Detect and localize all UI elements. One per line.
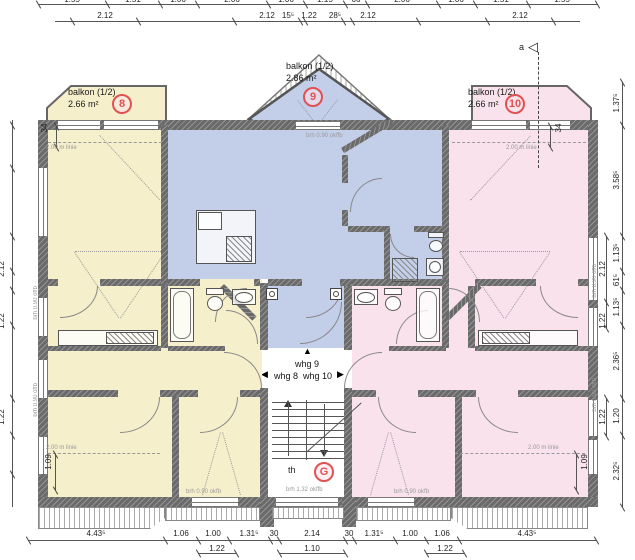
window (472, 120, 526, 130)
wall-segment (48, 279, 58, 286)
wall-segment (348, 226, 384, 232)
dimension-label: 1.20 (612, 408, 621, 424)
dimension-label: 1.22 (437, 544, 453, 553)
height-line-dashed (455, 453, 585, 454)
dimension-line (272, 437, 344, 438)
dimension-label: 1.15 (317, 0, 333, 4)
dimension-label: 2.12 (512, 11, 528, 20)
room-label-balkon-9: balkon (1/2) 2.86 m² (286, 60, 334, 84)
dimension-line (12, 120, 13, 507)
wall-segment (168, 279, 200, 286)
dimension-line (426, 553, 464, 554)
dimension-line (576, 454, 577, 490)
dimension-label: 3.58⁵ (612, 171, 621, 190)
dimension-label: 1.31⁵ (365, 529, 384, 538)
dimension-label: 1.06 (278, 0, 294, 4)
dimension-label: 1.13⁵ (612, 244, 621, 263)
dimension-line (272, 444, 344, 445)
dimension-line (198, 553, 236, 554)
fixture-hatched (226, 236, 252, 262)
window (58, 120, 100, 130)
dimension-label: 4.43⁵ (87, 529, 106, 538)
arrow-right-icon: ▶ (337, 370, 344, 379)
wall-segment (518, 390, 588, 397)
dimension-label: 1.51 (493, 0, 509, 4)
dimension-label: 2.12 (259, 11, 275, 20)
wall-segment (172, 397, 179, 497)
fixture-hatched (482, 332, 530, 344)
window (192, 497, 238, 507)
window (38, 360, 48, 398)
dimension-label: 1.22 (209, 544, 225, 553)
roof-hatch-area (165, 507, 260, 521)
fixture (428, 232, 444, 238)
annotation-label: 2.00 m linie (46, 145, 77, 151)
dimension-label: 1.00 (205, 529, 221, 538)
roof-hatch-area (272, 507, 344, 519)
window (588, 308, 598, 346)
door-post (266, 288, 278, 300)
annotation-label: brh 0.90 okfb (394, 489, 429, 495)
roof-projection-dotted-line (460, 251, 550, 252)
roof-hatch-area (451, 507, 588, 529)
dimension-label: 1.10 (304, 544, 320, 553)
height-line-dashed (48, 453, 160, 454)
window (296, 121, 340, 130)
window (38, 168, 48, 236)
fixture-ellipse (429, 240, 443, 252)
door-swing-arc (344, 352, 382, 388)
dimension-label: 1.22 (598, 409, 607, 425)
door-post (330, 288, 342, 300)
dimension-line (622, 82, 623, 507)
wall-segment (418, 390, 476, 397)
stairwell-unit-badge: G (314, 462, 334, 482)
arrow-left-icon: ◀ (261, 370, 268, 379)
fixture (198, 212, 222, 230)
wall-segment (344, 283, 352, 350)
dimension-label: 2.12 (97, 11, 113, 20)
dimension-label: 1.09 (44, 454, 53, 470)
window (276, 497, 338, 507)
unit-badge: 8 (112, 94, 132, 114)
annotation-label: 2.00 m linie (46, 445, 77, 451)
annotation-label: brh 0.90 offb (592, 264, 598, 298)
annotation-label: brh 0.90 offb (592, 378, 598, 412)
fixture (384, 288, 402, 295)
room-label-balkon-8: balkon (1/2) 2.66 m² (68, 86, 116, 110)
dimension-label: 1.22 (0, 313, 6, 329)
dimension-label: 1.22 (0, 409, 6, 425)
fixture-inner (419, 291, 437, 339)
dimension-label: 61⁵ (612, 274, 621, 286)
dimension-label: 1.22 (598, 313, 607, 329)
section-label-top: a (519, 42, 524, 52)
wall-segment (260, 388, 268, 507)
dimension-label: 1.51 (125, 0, 141, 4)
dimension-line (272, 402, 344, 403)
wall-segment (161, 125, 168, 286)
section-line-dashed (538, 52, 539, 168)
dimension-label: 2.32⁵ (612, 462, 621, 481)
window (104, 120, 158, 130)
dimension-line (38, 4, 598, 5)
wall-segment (48, 390, 118, 397)
dimension-label: 34 (554, 124, 563, 133)
fixture-ellipse (235, 292, 253, 303)
dimension-label: 1.06 (170, 0, 186, 4)
annotation-label: brh 0.90 offb (33, 286, 39, 320)
dimension-label: 1.13⁵ (612, 298, 621, 317)
dimension-label: 2.06 (394, 0, 410, 4)
dimension-label: 1.55 (64, 0, 80, 4)
dimension-label: 30 (270, 529, 279, 538)
dimension-label: 1.06 (173, 529, 189, 538)
fixture-ellipse (429, 261, 441, 273)
dimension-line (279, 553, 345, 554)
dimension-label: 2.36⁵ (612, 352, 621, 371)
nav-whg10-label: whg 10 (303, 371, 332, 381)
dimension-label: 1.37⁵ (612, 94, 621, 113)
annotation-label: brh 0.90 okffb (306, 133, 343, 139)
dimension-label: 34 (40, 124, 49, 133)
fixture-hatched (106, 332, 154, 344)
wall-segment (268, 279, 302, 286)
dimension-label: 30 (345, 529, 354, 538)
dimension-label: 1.06 (434, 529, 450, 538)
window (38, 298, 48, 336)
wall-segment (342, 155, 348, 183)
fixture-ellipse (207, 296, 223, 311)
dimension-label: 66 (352, 0, 361, 4)
fixture-hatched (392, 258, 418, 282)
annotation-label: 2.00 m linie (506, 145, 537, 151)
dimension-line (272, 430, 344, 431)
wall-segment (100, 279, 161, 286)
dimension-line (272, 423, 344, 424)
wall-segment (342, 210, 348, 226)
dimension-label: 15⁵ (282, 11, 294, 20)
dimension-label: 2.12 (360, 11, 376, 20)
dimension-label: 1.22 (301, 11, 317, 20)
nav-whg9-label: whg 9 (295, 359, 319, 369)
wall-segment (455, 397, 462, 497)
dimension-line (55, 454, 56, 490)
window (368, 497, 414, 507)
dimension-label: 4.43⁵ (518, 529, 537, 538)
fixture-ellipse (385, 296, 401, 311)
window (588, 440, 598, 474)
dimension-label: 1.31⁵ (240, 529, 259, 538)
nav-whg8-label: whg 8 (274, 371, 298, 381)
dimension-label: 2.12 (598, 261, 607, 277)
wall-segment (344, 388, 352, 507)
dimension-label: 1.09 (580, 454, 589, 470)
wall-segment (168, 346, 225, 351)
stair-window-note: brh 1.32 okffb (286, 487, 323, 493)
wall-segment (161, 286, 168, 348)
dimension-label: 2.06 (224, 0, 240, 4)
dimension-label: 1.00 (402, 529, 418, 538)
annotation-label: brh 0.90 okfb (186, 489, 221, 495)
unit-badge: 10 (505, 94, 525, 114)
wall-segment (240, 390, 260, 397)
room-name: balkon (1/2) (286, 60, 334, 72)
room-name: balkon (1/2) (68, 86, 116, 98)
dimension-line (272, 416, 344, 417)
dimension-line (272, 458, 344, 459)
dimension-label: 1.06 (448, 0, 464, 4)
dimension-label: 28⁵ (329, 11, 341, 20)
dimension-line (272, 451, 344, 452)
wall-segment (352, 390, 376, 397)
dimension-label: 2.12 (0, 261, 6, 277)
wall-segment (48, 346, 161, 351)
arrow-up-icon: ▲ (303, 347, 312, 356)
wall-segment (389, 346, 446, 351)
fixture-ellipse (357, 292, 375, 303)
room-area: 2.86 m² (286, 72, 334, 84)
annotation-label: brh 0.90 offb (33, 383, 39, 417)
dimension-line (28, 540, 596, 541)
height-line-dashed (452, 142, 586, 143)
fixture-inner (173, 291, 191, 339)
wall-segment (578, 279, 588, 286)
floor-plan: balkon (1/2) 2.66 m² 8 balkon (1/2) 2.86… (0, 0, 635, 560)
wall-segment (342, 497, 356, 527)
roof-hatch-area (38, 507, 165, 529)
stairwell-label: th (288, 465, 296, 475)
dimension-label: 1.55 (554, 0, 570, 4)
wall-segment (340, 279, 352, 286)
fixture (206, 288, 224, 295)
dimension-line (272, 409, 344, 410)
roof-hatch-area (356, 507, 451, 521)
wall-segment (475, 279, 536, 286)
annotation-label: 2.00 m linie (528, 445, 559, 451)
height-line-dashed (48, 142, 162, 143)
wall-segment (160, 390, 198, 397)
dimension-label: 2.14 (304, 529, 320, 538)
wall-segment (475, 346, 588, 351)
room-area: 2.66 m² (68, 98, 116, 110)
dimension-line (55, 21, 580, 22)
unit-badge: 9 (303, 87, 323, 107)
roof-projection-dotted-line (75, 251, 165, 252)
wall-segment (254, 279, 260, 286)
section-marker-top-icon: ◁ (528, 40, 538, 53)
